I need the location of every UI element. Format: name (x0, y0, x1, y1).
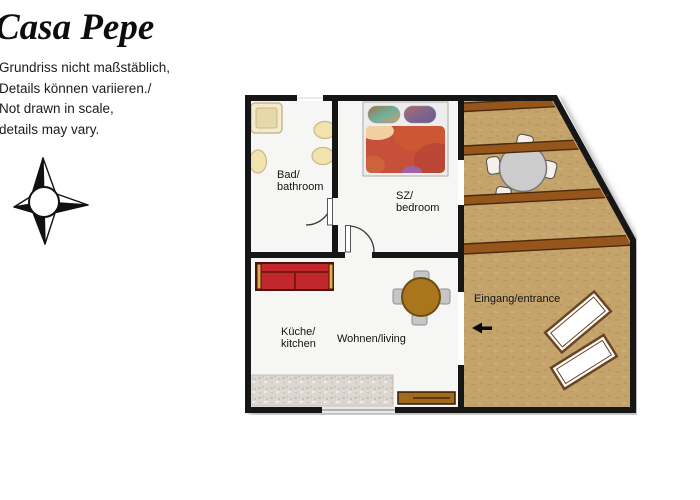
compass-icon (10, 152, 90, 247)
bathroom-toilet (312, 148, 334, 165)
dining-table (402, 278, 440, 316)
sofa-arm-left (257, 264, 261, 289)
entrance-door-gap (458, 292, 464, 365)
sofa-arm-right (329, 264, 333, 289)
wall-bath-bedroom-upper (332, 101, 338, 198)
page-title: Casa Pepe (0, 6, 154, 49)
pillow-right (404, 106, 436, 123)
wall-bedroom-living (372, 252, 461, 258)
kitchen-label: Küche/ kitchen (281, 327, 316, 350)
bathroom-bidet (250, 150, 267, 173)
wall-bath-bedroom-lower (332, 225, 338, 252)
window-bathroom-glass (297, 98, 323, 99)
bed (360, 102, 458, 179)
compass-center (29, 187, 59, 217)
window-bedroom (458, 160, 464, 205)
wall-bath-living (251, 252, 345, 258)
sideboard (398, 392, 455, 404)
window-kitchen-glass (322, 409, 395, 411)
terrace (461, 95, 636, 410)
kitchen-counter (252, 375, 393, 406)
pillow-left (368, 106, 400, 123)
bedroom-label: SZ/ bedroom (396, 191, 439, 214)
floorplan-canvas (245, 95, 637, 415)
sofa (256, 263, 333, 290)
duvet (360, 120, 458, 179)
entrance-label: Eingang/entrance (474, 294, 560, 306)
living-label: Wohnen/living (337, 334, 406, 346)
shower-tray (256, 108, 277, 128)
bathroom-label: Bad/ bathroom (277, 170, 323, 193)
disclaimer-text: Grundriss nicht maßstäblich, Details kön… (0, 58, 170, 140)
floorplan: Bad/ bathroom SZ/ bedroom Küche/ kitchen… (245, 95, 637, 415)
